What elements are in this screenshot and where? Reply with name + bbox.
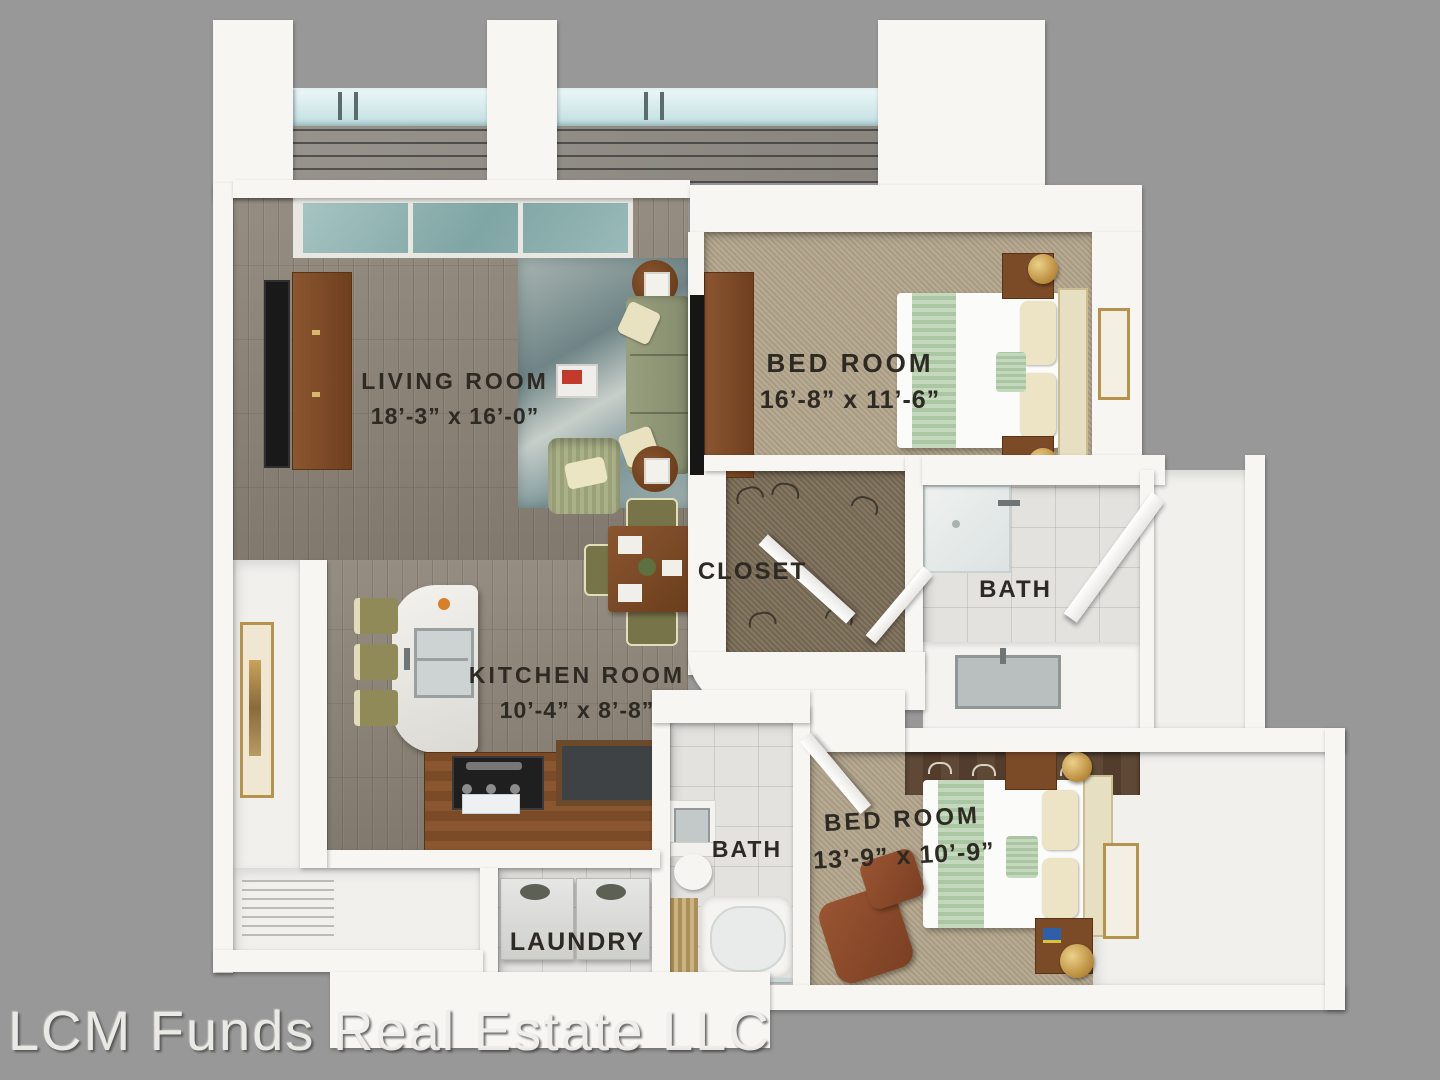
table-lamp-gold [1062,752,1092,782]
wall [905,455,923,671]
room-dimensions: 10’-4” x 8’-8” [452,699,702,722]
bar-stool [354,690,398,726]
wall [487,20,557,186]
bath-mat-wood [666,898,698,978]
sink-divider [414,658,468,661]
hanger-icon [928,762,952,774]
place-setting [662,560,682,576]
table-lamp [644,272,670,298]
room-name: CLOSET [690,560,815,584]
washer-lid-icon [520,884,550,900]
room-dimensions: 18’-3” x 16’-0” [330,405,580,428]
room-dimensions: 16’-8” x 11’-6” [735,388,965,413]
bar-stool [354,598,398,634]
stove-knob-icon [510,784,520,794]
wall [922,455,1165,485]
cooktop-griddle [556,740,658,806]
railing-post-icon [644,92,648,120]
bedroom2-label: BED ROOM 13’-9” x 10’-9” [797,803,1010,875]
wall [810,690,905,752]
hanger-icon [972,764,996,776]
floor-plan-render: LIVING ROOM 18’-3” x 16’-0” BED ROOM 16’… [0,0,1440,1080]
shower-head-icon [998,500,1020,506]
room-name: BATH [958,578,1073,602]
room-name: KITCHEN ROOM [452,664,702,687]
closet-label: CLOSET [690,560,815,584]
wall [213,20,293,198]
wall [905,728,1345,752]
room-name: BED ROOM [735,350,965,376]
table-lamp-gold [1028,254,1058,284]
kitchen-label: KITCHEN ROOM 10’-4” x 8’-8” [452,664,702,722]
wall [233,180,690,198]
wall [878,20,1045,186]
wall [327,850,660,868]
entry-door-mat [242,880,334,936]
console-handle-icon [312,330,320,335]
place-setting [618,584,642,602]
wall-art-frame [1103,843,1139,939]
teapot-icon [438,598,450,610]
shower [923,485,1011,573]
bedroom1-label: BED ROOM 16’-8” x 11’-6” [735,350,965,413]
bathtub-basin [710,906,786,972]
wall [704,455,924,471]
headboard [1058,288,1088,458]
wall-art-frame [1098,308,1130,400]
laundry-label: LAUNDRY [500,930,655,955]
tv-icon [690,295,704,475]
accent-pillow [996,352,1026,392]
railing-post-icon [354,92,358,120]
shower-drain-icon [952,520,960,528]
wall [1245,455,1265,730]
bar-stool [354,644,398,680]
dining-chair [626,608,678,646]
dryer-lid-icon [596,884,626,900]
faucet-icon [404,648,410,670]
room-name: BATH [692,838,802,861]
accent-pillow [1006,836,1038,878]
railing-post-icon [660,92,664,120]
stove-knob-icon [486,784,496,794]
bath2-label: BATH [692,838,802,861]
vanity-sink [955,655,1061,709]
bath1-label: BATH [958,578,1073,602]
room-name: LIVING ROOM [330,370,580,393]
wall [213,183,233,973]
kitchen-towel [462,794,520,814]
stove-knob-icon [462,784,472,794]
tv-icon [264,280,290,468]
wall [1325,728,1345,1010]
pan-icon [466,762,522,770]
wall [690,185,1142,232]
room-name: LAUNDRY [500,930,655,955]
books-icon [1043,928,1061,943]
sofa-cushion-line [630,354,688,356]
living-room-label: LIVING ROOM 18’-3” x 16’-0” [330,370,580,428]
wall [300,560,327,868]
table-centerpiece [638,558,656,576]
wall [213,950,483,972]
nightstand [1005,746,1057,790]
balcony-deck [293,126,975,183]
watermark-text: LCM Funds Real Estate LLC [8,998,771,1063]
place-setting [618,536,642,554]
patio-skylight-glass [293,198,633,258]
table-lamp [644,458,670,484]
sofa-cushion-line [630,412,688,414]
railing-post-icon [338,92,342,120]
wall-art-print [249,660,261,756]
console-handle-icon [312,392,320,397]
table-lamp-gold [1060,944,1094,978]
faucet-icon [1000,648,1006,664]
pillow [1042,858,1078,918]
pillow [1042,790,1078,850]
balcony-glass-railing [293,88,975,128]
